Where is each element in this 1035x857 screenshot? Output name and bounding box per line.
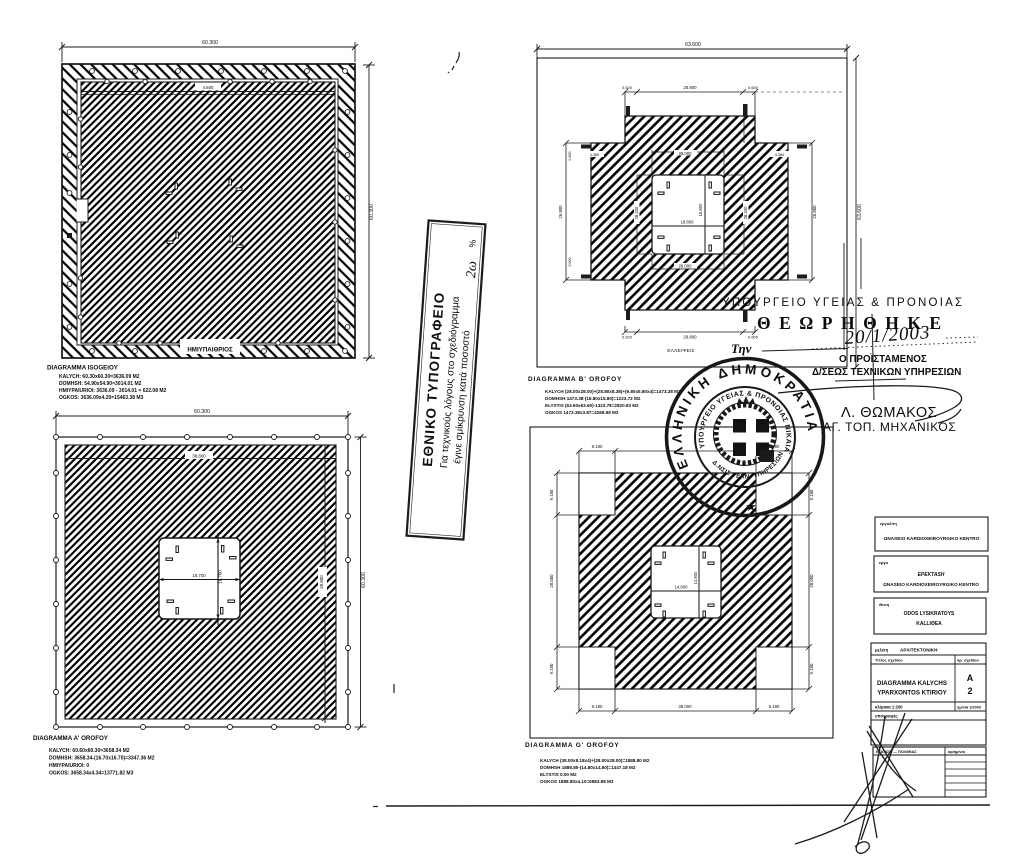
svg-text:ΗΜΙΥΠΑΙΘΡΙΟΣ: ΗΜΙΥΠΑΙΘΡΙΟΣ [187, 347, 233, 354]
svg-text:9.180: 9.180 [592, 704, 603, 709]
svg-text:0.600: 0.600 [748, 85, 759, 90]
svg-text:0.600: 0.600 [568, 152, 572, 161]
svg-text:KALYCH (28.00x28.00)+(28.80x8: KALYCH (28.00x28.00)+(28.80x8.38)+(9.80x… [545, 389, 681, 394]
svg-text:60.300: 60.300 [194, 409, 210, 415]
svg-text:υπογραφές: υπογραφές [875, 714, 898, 719]
svg-text:28.400: 28.400 [634, 206, 639, 219]
svg-text:26.800: 26.800 [558, 205, 563, 219]
svg-text:KALLIΘEA: KALLIΘEA [916, 621, 942, 627]
svg-text:αρ. σχεδίου: αρ. σχεδίου [957, 658, 980, 663]
svg-text:0.620: 0.620 [622, 335, 633, 340]
svg-text:38.800: 38.800 [319, 575, 324, 589]
svg-text:EPEKTASH: EPEKTASH [918, 572, 945, 578]
svg-text:ΑΡΧΙΤΕΚΤΟΝΙΚΗ: ΑΡΧΙΤΕΚΤΟΝΙΚΗ [900, 648, 938, 653]
svg-text:HMIYPAIURIOI: 0: HMIYPAIURIOI: 0 [49, 763, 89, 769]
svg-text:DIAGRAMMA KALYCHS: DIAGRAMMA KALYCHS [877, 680, 947, 687]
svg-text:28.000: 28.000 [679, 264, 692, 269]
svg-text:ΕΓΚΡΙΣΗ — ΠΟΛ/ΜΙΑΣ: ΕΓΚΡΙΣΗ — ΠΟΛ/ΜΙΑΣ [876, 750, 917, 754]
svg-text:αρ/ημ/νία: αρ/ημ/νία [948, 750, 966, 754]
svg-text:14.800: 14.800 [675, 585, 688, 590]
svg-text:Λ. ΘΩΜΑΚΟΣ: Λ. ΘΩΜΑΚΟΣ [841, 405, 937, 421]
svg-text:9.180: 9.180 [592, 444, 603, 449]
svg-text:2ω: 2ω [464, 261, 480, 279]
svg-text:Ο ΠΡΟΪΣΤΑΜΕΝΟΣ: Ο ΠΡΟΪΣΤΑΜΕΝΟΣ [839, 354, 927, 365]
svg-text:DIAGRAMMA G' OROFOY: DIAGRAMMA G' OROFOY [525, 742, 620, 749]
svg-text:4.600: 4.600 [203, 85, 215, 90]
svg-text:38.800: 38.800 [192, 454, 206, 459]
svg-text:ΩNASEIO KARDIOXEIROYRGIKO KENT: ΩNASEIO KARDIOXEIROYRGIKO KENTRO [883, 582, 979, 587]
svg-text:κλίμακα 1:200: κλίμακα 1:200 [875, 705, 903, 710]
svg-text:OGKOS: 3658.34x4.34=13771.82: OGKOS: 3658.34x4.34=13771.82 M3 [49, 771, 134, 777]
svg-text:%: % [467, 239, 478, 248]
svg-text:OGKOS 1888.80x4.10=6983.88 M: OGKOS 1888.80x4.10=6983.88 M3 [540, 779, 614, 784]
svg-text:DOMHSH 1473.38-(18.80x15.80)=: DOMHSH 1473.38-(18.80x15.80)=1223.72 M2 [545, 396, 641, 401]
svg-text:9.180: 9.180 [769, 704, 780, 709]
svg-text:DIAGRAMMA B' OROFOY: DIAGRAMMA B' OROFOY [528, 376, 622, 383]
svg-text:60.300: 60.300 [369, 204, 375, 220]
svg-text:2: 2 [967, 686, 972, 696]
svg-text:60.300: 60.300 [361, 572, 367, 588]
svg-text:0.620: 0.620 [622, 85, 633, 90]
svg-text:28.800: 28.800 [683, 335, 697, 340]
svg-text:KALYCH: 60.30x60.30=3636.09: KALYCH: 60.30x60.30=3636.09 M2 [59, 374, 140, 380]
svg-text:Την: Την [731, 341, 752, 356]
svg-text:DOMHSH: 3658.34-(16.70x16.70: DOMHSH: 3658.34-(16.70x16.70)=3347.36 M2 [49, 756, 155, 762]
svg-text:ΑΓ. ΤΟΠ. ΜΗΧΑΝΙΚΟΣ: ΑΓ. ΤΟΠ. ΜΗΧΑΝΙΚΟΣ [823, 420, 956, 434]
svg-text:εργοδ/τη: εργοδ/τη [880, 521, 897, 526]
svg-text:0.600: 0.600 [748, 335, 759, 340]
svg-text:KALYCH: 60.60x60.30=3658.34: KALYCH: 60.60x60.30=3658.34 M2 [49, 748, 130, 754]
svg-text:ELYSTIS (63.60x63.60)-1323.78: ELYSTIS (63.60x63.60)-1323.78=2820.83 M2 [545, 403, 639, 408]
svg-text:28.000: 28.000 [679, 151, 692, 156]
svg-text:9.180: 9.180 [809, 663, 814, 674]
svg-text:ΕΛΛΕΙΨΕΙΣ: ΕΛΛΕΙΨΕΙΣ [667, 348, 694, 354]
svg-text:KALYCH (38.00x8.18x4)+(28.00x: KALYCH (38.00x8.18x4)+(28.00x28.00)=1888… [540, 758, 650, 763]
svg-text:★: ★ [745, 499, 757, 514]
svg-text:28.400: 28.400 [743, 206, 748, 219]
svg-text:4.380: 4.380 [590, 153, 600, 157]
svg-text:DOMHSH: 54.90x54.90=3014.01: DOMHSH: 54.90x54.90=3014.01 M2 [59, 381, 142, 387]
svg-text:ODOS LYSIKRATOYS: ODOS LYSIKRATOYS [904, 611, 955, 617]
svg-text:18.800: 18.800 [681, 220, 694, 225]
svg-text:15.800: 15.800 [698, 203, 703, 216]
svg-text:26.800: 26.800 [812, 205, 817, 219]
svg-text:ημ/νία 1/2003: ημ/νία 1/2003 [957, 706, 981, 710]
svg-text:28.000: 28.000 [549, 574, 554, 588]
svg-text:ELYSTIS 0.00 M2: ELYSTIS 0.00 M2 [540, 772, 577, 777]
svg-text:OGKOS 1473.38x3.87=4268.98 M: OGKOS 1473.38x3.87=4268.98 M3 [545, 410, 619, 415]
svg-text:9.180: 9.180 [549, 663, 554, 674]
svg-text:YPARXONTOS KTIRIOY: YPARXONTOS KTIRIOY [877, 690, 947, 697]
svg-text:14.800: 14.800 [693, 571, 698, 584]
svg-text:16.700: 16.700 [218, 570, 223, 584]
svg-text:OGKOS: 3636.09x4.20=15463.38: OGKOS: 3636.09x4.20=15463.38 M3 [59, 395, 144, 401]
svg-text:38.000: 38.000 [678, 704, 692, 709]
svg-text:4.380: 4.380 [775, 153, 785, 157]
svg-text:DIAGRAMMA A' OROFOY: DIAGRAMMA A' OROFOY [33, 735, 109, 742]
svg-text:A: A [967, 673, 974, 683]
svg-text:HMIYPAIURIOI: 3636.09 - 3014: HMIYPAIURIOI: 3636.09 - 3014.01 = 622.08… [59, 388, 167, 394]
svg-text:9.180: 9.180 [549, 489, 554, 500]
svg-text:16.700: 16.700 [192, 573, 206, 578]
svg-text:DOMHSH 1888.80-(14.80x14.80)=: DOMHSH 1888.80-(14.80x14.80)=1447.18 M2 [540, 765, 636, 770]
svg-text:Δ/ΣΕΩΣ ΤΕΧΝΙΚΩΝ ΥΠΗΡΕΣΙΩΝ: Δ/ΣΕΩΣ ΤΕΧΝΙΚΩΝ ΥΠΗΡΕΣΙΩΝ [812, 367, 961, 378]
svg-text:μελέτη: μελέτη [875, 648, 889, 653]
svg-text:0.600: 0.600 [568, 258, 572, 267]
svg-text:60.300: 60.300 [202, 40, 218, 46]
svg-text:ΥΠΟΥΡΓΕΙΟ ΥΓΕΙΑΣ & ΠΡΟΝΟΙΑΣ: ΥΠΟΥΡΓΕΙΟ ΥΓΕΙΑΣ & ΠΡΟΝΟΙΑΣ [722, 297, 964, 309]
svg-text:28.800: 28.800 [683, 85, 697, 90]
svg-text:63.600: 63.600 [685, 42, 701, 48]
svg-text:Θεση: Θεση [879, 602, 890, 607]
svg-text:DIAGRAMMA ISOGEIOY: DIAGRAMMA ISOGEIOY [47, 365, 119, 372]
svg-text:28.000: 28.000 [809, 574, 814, 588]
svg-text:εργο: εργο [879, 560, 889, 565]
svg-text:ΩNASEIO KARDIOXEIROYRGIKO KENT: ΩNASEIO KARDIOXEIROYRGIKO KENTRO [884, 536, 980, 541]
svg-text:63.600: 63.600 [857, 204, 863, 220]
svg-text:Τίτλος σχεδίου: Τίτλος σχεδίου [875, 658, 903, 663]
svg-text:9.180: 9.180 [809, 489, 814, 500]
